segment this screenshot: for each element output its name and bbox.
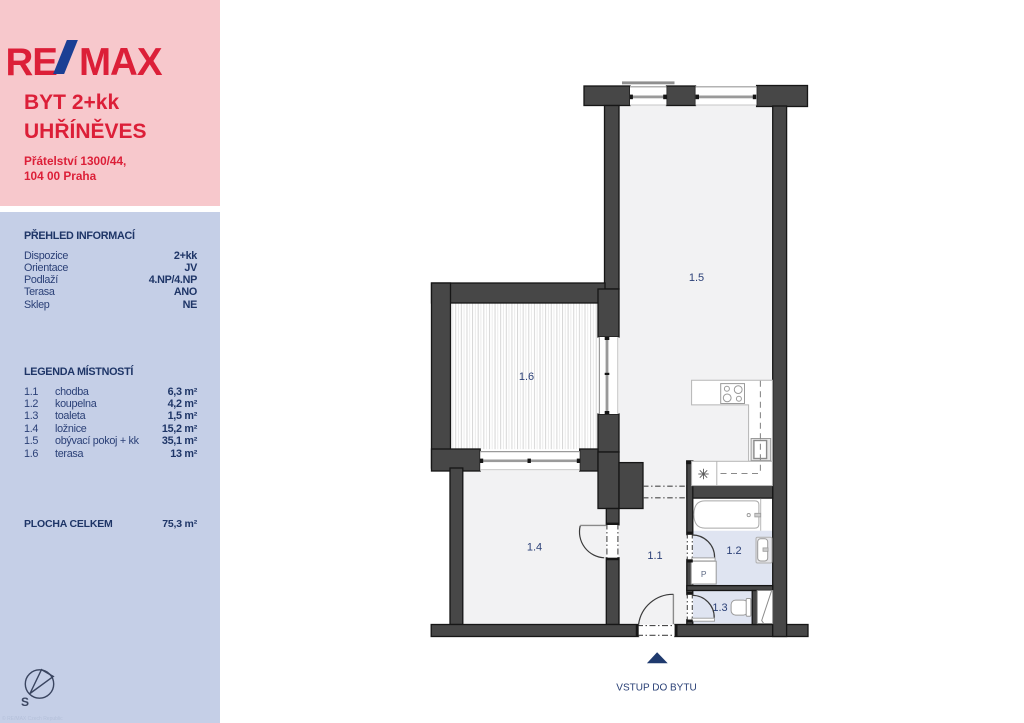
svg-text:1.5: 1.5 [689, 272, 704, 284]
svg-text:1.2: 1.2 [726, 545, 741, 557]
svg-text:1.3: 1.3 [712, 602, 727, 614]
svg-text:VSTUP DO BYTU: VSTUP DO BYTU [616, 683, 696, 694]
svg-text:P: P [701, 569, 707, 579]
svg-text:1.6: 1.6 [519, 371, 534, 383]
svg-text:1.4: 1.4 [527, 542, 542, 554]
svg-text:1.1: 1.1 [647, 550, 662, 562]
